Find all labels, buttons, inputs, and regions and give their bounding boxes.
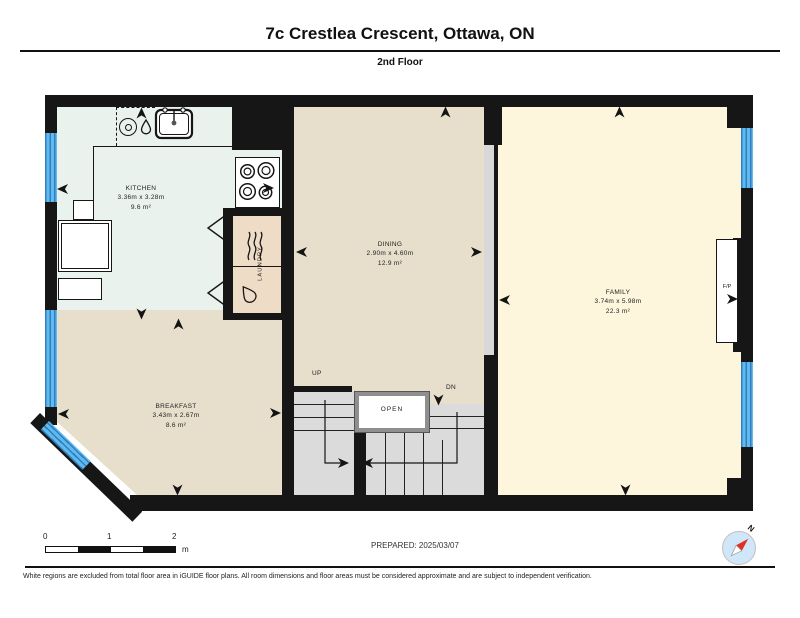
scale-segment [78, 547, 110, 552]
scale-tick-1: 1 [107, 532, 112, 541]
fridge [58, 220, 112, 272]
floorplan-page: 7c Crestlea Crescent, Ottawa, ON 2nd Flo… [0, 0, 800, 618]
window-breakfast-left [45, 310, 57, 407]
room-area: 8.6 m² [116, 421, 236, 430]
footer-divider [25, 566, 775, 568]
dining-label: DINING 2.90m x 4.60m 12.9 m² [330, 240, 450, 268]
stair-up-label: UP [312, 370, 322, 377]
dishwasher-icon-inner [125, 124, 132, 131]
room-name: KITCHEN [81, 184, 201, 193]
scale-segment [46, 547, 78, 552]
window-family-right-bottom [741, 362, 753, 447]
kitchen-cabinet [58, 278, 102, 300]
sink-icon [152, 104, 196, 142]
page-title: 7c Crestlea Crescent, Ottawa, ON [0, 24, 800, 44]
wall-family-notch-top [727, 95, 753, 128]
water-drop-icon [140, 119, 152, 135]
room-name: FAMILY [558, 288, 678, 297]
fireplace-label: F/P [716, 284, 738, 290]
room-area: 9.6 m² [81, 203, 201, 212]
room-name: DINING [330, 240, 450, 249]
floor-subtitle: 2nd Floor [0, 57, 800, 68]
compass-needle-icon [722, 531, 756, 565]
wall-family-notch-bottom [727, 478, 753, 511]
stove-burners-icon [235, 157, 280, 208]
counter-edge-top [93, 146, 232, 147]
room-name: BREAKFAST [116, 402, 236, 411]
scale-bar [45, 546, 176, 553]
footer-disclaimer: White regions are excluded from total fl… [23, 573, 783, 580]
title-divider [20, 50, 780, 52]
stair-direction-lines [280, 360, 490, 500]
scale-segment [111, 547, 143, 552]
room-area: 22.3 m² [558, 307, 678, 316]
laundry-door-icon-upper [206, 211, 232, 245]
kitchen-label: KITCHEN 3.36m x 3.28m 9.6 m² [81, 184, 201, 212]
dining-family-opening [484, 145, 494, 355]
family-label: FAMILY 3.74m x 5.98m 22.3 m² [558, 288, 678, 316]
breakfast-label: BREAKFAST 3.43m x 2.67m 8.6 m² [116, 402, 236, 430]
room-dims: 2.90m x 4.60m [330, 249, 450, 258]
window-family-right-top [741, 128, 753, 188]
fireplace-box [716, 239, 738, 343]
room-dims: 3.74m x 5.98m [558, 297, 678, 306]
scale-segment [143, 547, 175, 552]
room-dims: 3.43m x 2.67m [116, 411, 236, 420]
room-dims: 3.36m x 3.28m [81, 193, 201, 202]
laundry-label: LAUNDRY [258, 238, 269, 290]
scale-tick-0: 0 [43, 532, 48, 541]
wall-laundry-bottom [223, 313, 282, 320]
scale-unit: m [182, 545, 189, 554]
room-area: 12.9 m² [330, 259, 450, 268]
prepared-date: PREPARED: 2025/03/07 [300, 541, 530, 550]
wall-dining-family-top-block [484, 95, 502, 145]
laundry-door-icon-lower [206, 276, 232, 310]
window-kitchen-left [45, 133, 57, 202]
stair-dn-label: DN [446, 384, 456, 391]
scale-tick-2: 2 [172, 532, 177, 541]
